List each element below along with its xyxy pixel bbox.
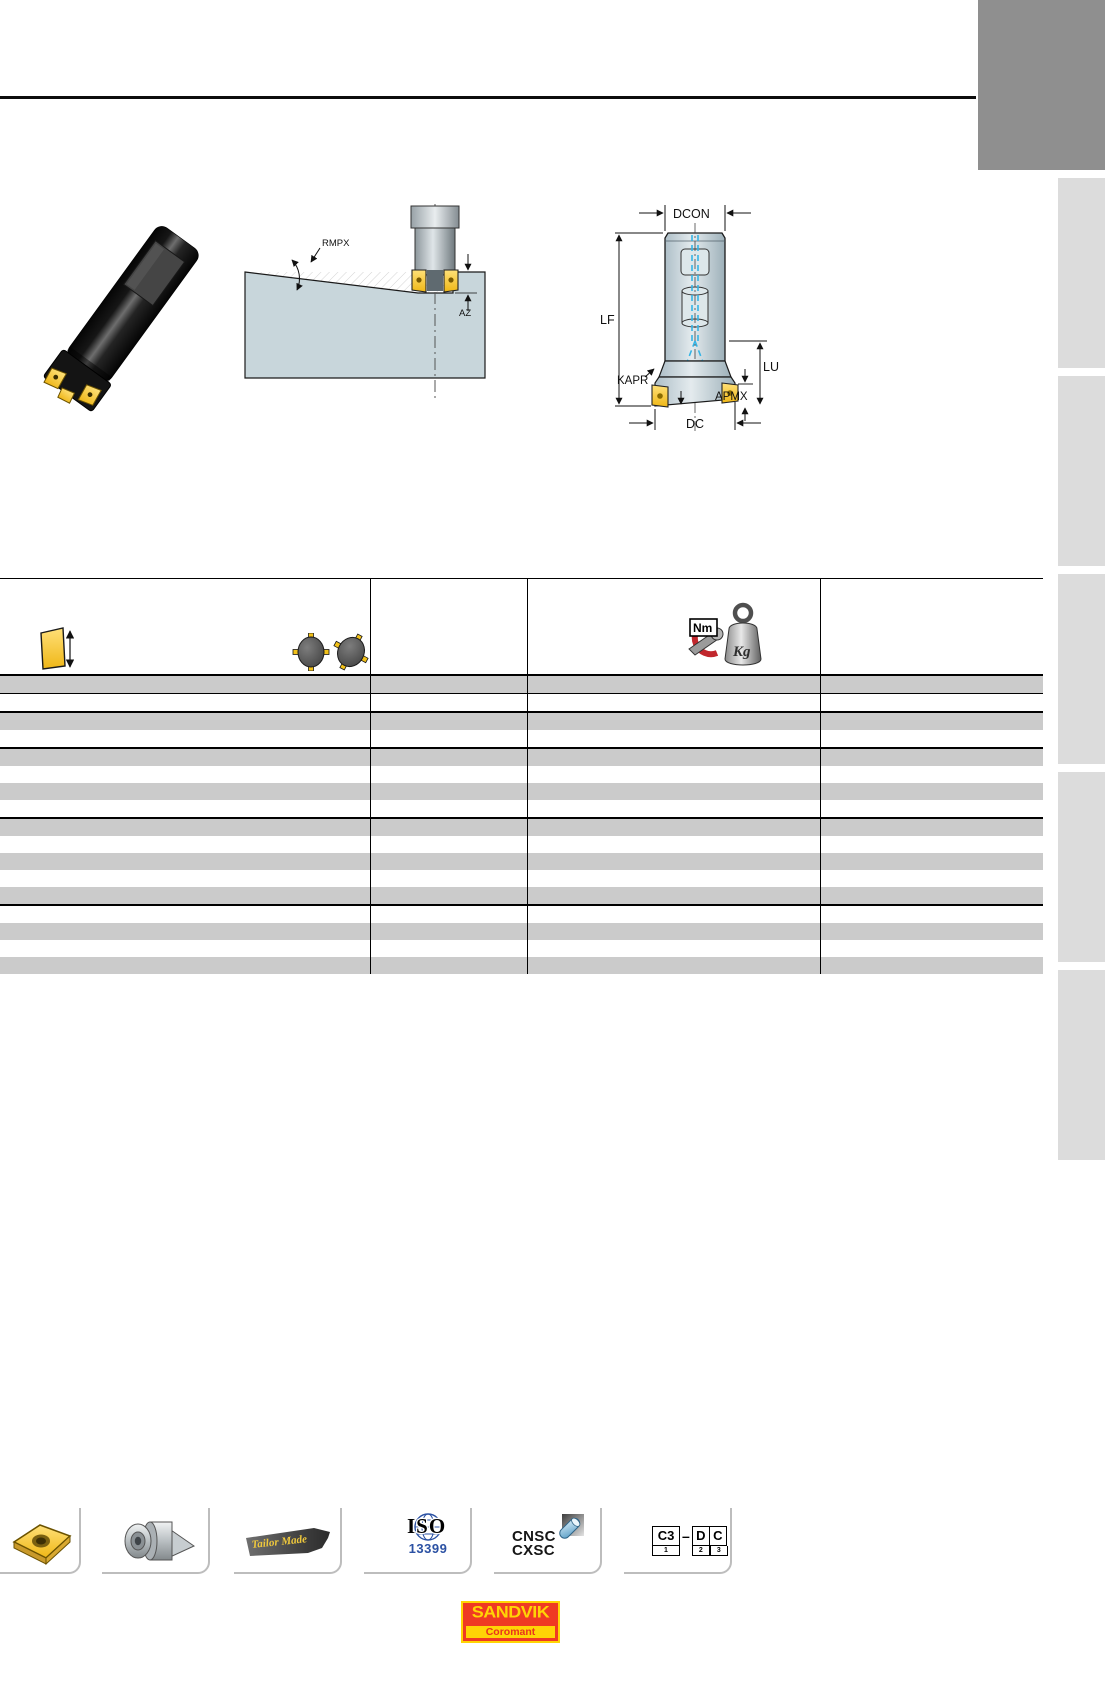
logo-brand: SANDVIK <box>463 1604 558 1621</box>
tool-body <box>415 228 455 275</box>
product-photo-end-mill <box>0 215 240 420</box>
kg-label: Kg <box>732 644 751 660</box>
code-sub3: 3 <box>710 1546 728 1556</box>
ordering-code-icon: C3 1 – D 2 C 3 <box>652 1526 728 1556</box>
table-rows <box>0 676 1043 974</box>
legend-box-holder <box>102 1508 210 1574</box>
table-row <box>0 819 1043 836</box>
table-row <box>0 694 1043 713</box>
table-row <box>0 730 1043 749</box>
insert-edge-length-icon <box>38 627 78 671</box>
coupling-pin-icon <box>554 1514 584 1544</box>
column-divider <box>527 579 528 974</box>
legend-box-tailor-made: Tailor Made <box>234 1508 342 1574</box>
table-header: Nm Kg <box>0 579 1043 676</box>
register-tab <box>1058 574 1105 764</box>
code-dash: – <box>682 1528 690 1544</box>
register-tab <box>1058 772 1105 962</box>
table-row <box>0 940 1043 957</box>
az-label: AZ <box>459 308 471 319</box>
dcon-label: DCON <box>673 207 710 221</box>
lu-label: LU <box>763 360 779 374</box>
table-row <box>0 957 1043 974</box>
turning-insert-icon <box>6 1520 78 1570</box>
register-tab <box>1058 970 1105 1160</box>
catalog-page: RMPX AZ DCON <box>0 0 1105 1684</box>
register-tab-active <box>978 0 1105 170</box>
register-tab <box>1058 178 1105 368</box>
table-row <box>0 853 1043 870</box>
table-row <box>0 887 1043 906</box>
apmx-label: APMX <box>715 391 748 403</box>
tailor-made-icon: Tailor Made <box>244 1526 332 1560</box>
code-c: C <box>710 1526 727 1546</box>
torque-icon: Nm <box>689 619 723 655</box>
table-row <box>0 836 1043 853</box>
rmpx-label: RMPX <box>322 238 350 249</box>
table-row <box>0 713 1043 730</box>
coupling-codes: CNSC CXSC <box>512 1530 556 1558</box>
tool-tip-core <box>427 270 443 291</box>
table-row <box>0 800 1043 819</box>
iso-label: ISO <box>407 1514 446 1538</box>
tool-dimension-diagram: DCON LF KAPR APMX LU <box>595 193 830 441</box>
iso-number: 13399 <box>398 1542 458 1555</box>
column-divider <box>370 579 371 974</box>
column-divider <box>820 579 821 974</box>
table-row <box>0 676 1043 694</box>
table-row <box>0 783 1043 800</box>
code-c3: C3 <box>652 1526 680 1546</box>
tool-shank <box>411 206 459 228</box>
nm-label: Nm <box>693 621 712 635</box>
table-row <box>0 923 1043 940</box>
kapr-label: KAPR <box>617 375 648 387</box>
sandvik-coromant-logo: SANDVIK Coromant <box>461 1601 560 1643</box>
top-rule <box>0 96 976 99</box>
legend-box-insert <box>0 1508 81 1574</box>
legend-box-iso: ISO 13399 <box>364 1508 472 1574</box>
tool-neck <box>659 361 731 377</box>
dc-label: DC <box>686 417 704 431</box>
code-sub2: 2 <box>692 1546 710 1556</box>
legend-box-ordering-code: C3 1 – D 2 C 3 <box>624 1508 732 1574</box>
tool-holder-icon <box>116 1514 200 1566</box>
table-row <box>0 870 1043 887</box>
table-row <box>0 749 1043 766</box>
table-row <box>0 906 1043 923</box>
weight-icon: Kg <box>725 605 761 665</box>
legend-box-coupling: CNSC CXSC <box>494 1508 602 1574</box>
dimensions-table: Nm Kg <box>0 578 1043 974</box>
register-tab <box>1058 376 1105 566</box>
code-sub1: 1 <box>652 1546 680 1556</box>
lf-label: LF <box>600 313 615 327</box>
table-row <box>0 766 1043 783</box>
torque-and-weight-icons: Nm Kg <box>681 601 765 671</box>
ramping-diagram: RMPX AZ <box>240 200 490 415</box>
logo-sub-brand: Coromant <box>466 1626 555 1638</box>
iso-13399-icon: ISO 13399 <box>398 1512 458 1555</box>
code-d: D <box>692 1526 710 1546</box>
coupling-code-2: CXSC <box>512 1544 556 1558</box>
effective-teeth-icon <box>291 633 373 671</box>
